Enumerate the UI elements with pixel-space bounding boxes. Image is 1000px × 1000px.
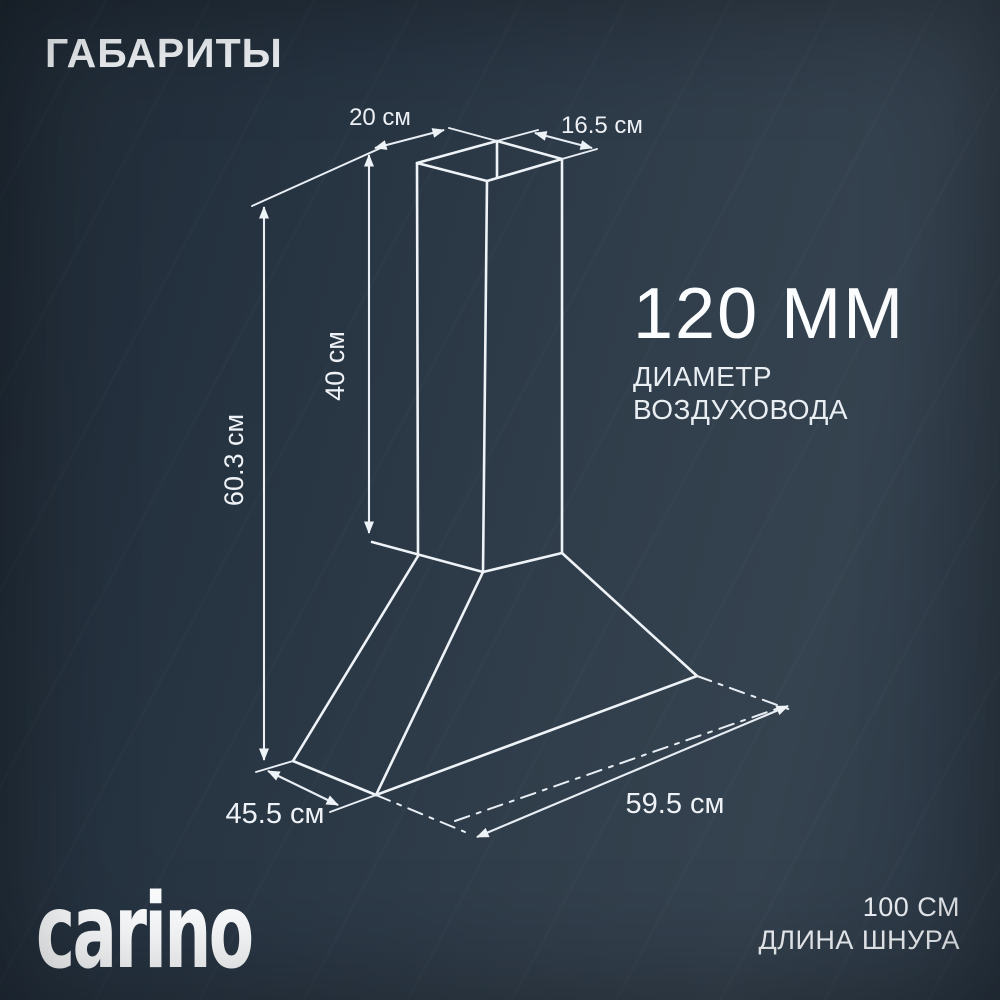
dim-label-base-depth: 45.5 см	[226, 798, 325, 830]
infographic-canvas: ГАБАРИТЫ	[0, 0, 1000, 1000]
hood-top-left-edge	[372, 542, 483, 572]
duct-diameter-label: ДИАМЕТР ВОЗДУХОВОДА	[633, 360, 905, 426]
dim-label-base-width: 59.5 см	[626, 788, 725, 820]
dim-label-chimney-height: 40 см	[320, 331, 350, 401]
cone-right-edge	[562, 553, 697, 676]
dim-line-top-width	[375, 130, 444, 148]
cord-length-value: 100 СМ	[758, 891, 960, 924]
cone-left-edge	[293, 556, 418, 761]
dim-label-total-height: 60.3 см	[219, 414, 249, 506]
cord-length-callout: 100 СМ ДЛИНА ШНУРА	[758, 891, 960, 957]
duct-label-line1: ДИАМЕТР	[633, 360, 905, 393]
duct-label-line2: ВОЗДУХОВОДА	[633, 393, 905, 426]
chimney-front-edge	[483, 181, 487, 572]
chimney-left-edge	[417, 163, 418, 556]
hood-top-right-edge	[483, 553, 562, 572]
chimney-top-face	[417, 141, 562, 181]
brand-logo: carino	[36, 872, 252, 992]
cord-length-label: ДЛИНА ШНУРА	[758, 924, 960, 957]
extension-lines	[252, 128, 597, 812]
hood-outline	[293, 141, 697, 795]
hood-dimension-drawing: 20 см 16.5 см 40 см 60.3 см 45.5 см 59.5…	[0, 0, 1000, 1000]
duct-diameter-callout: 120 ММ ДИАМЕТР ВОЗДУХОВОДА	[633, 278, 905, 426]
dash-dot-lines	[376, 676, 791, 832]
dim-label-top-width: 20 см	[349, 104, 411, 131]
dim-label-top-depth: 16.5 см	[561, 112, 643, 139]
dimension-lines	[264, 130, 788, 837]
duct-diameter-value: 120 ММ	[633, 278, 905, 350]
